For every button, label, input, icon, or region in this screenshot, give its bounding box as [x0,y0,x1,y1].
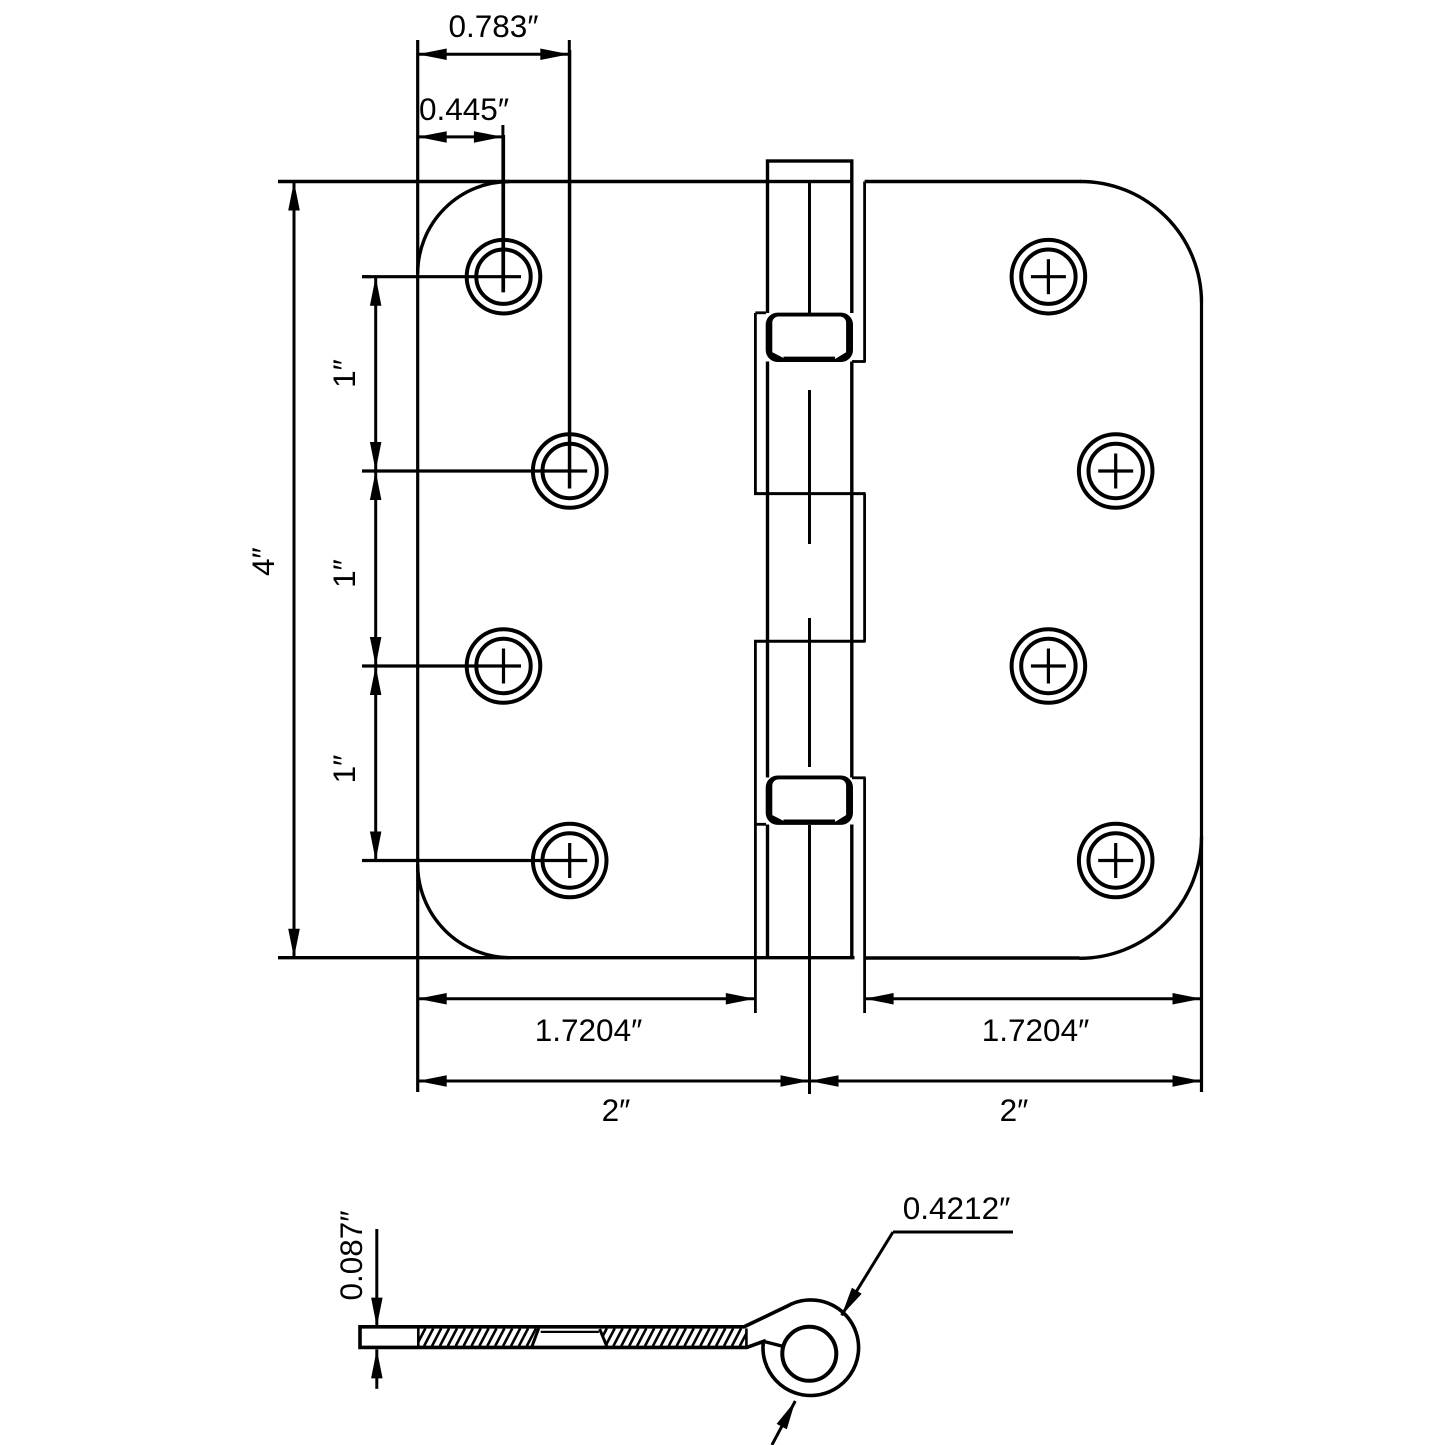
svg-text:1″: 1″ [326,359,362,388]
svg-text:0.4212″: 0.4212″ [903,1190,1011,1226]
svg-text:1.7204″: 1.7204″ [535,1012,643,1048]
svg-text:1″: 1″ [326,755,362,784]
svg-text:2″: 2″ [1000,1092,1029,1128]
svg-text:1.7204″: 1.7204″ [982,1012,1090,1048]
svg-text:0.783″: 0.783″ [449,8,539,44]
svg-text:2″: 2″ [602,1092,631,1128]
svg-text:0.087″: 0.087″ [333,1211,369,1301]
svg-text:1″: 1″ [326,559,362,588]
svg-text:4″: 4″ [245,547,281,576]
svg-text:0.445″: 0.445″ [419,91,509,127]
